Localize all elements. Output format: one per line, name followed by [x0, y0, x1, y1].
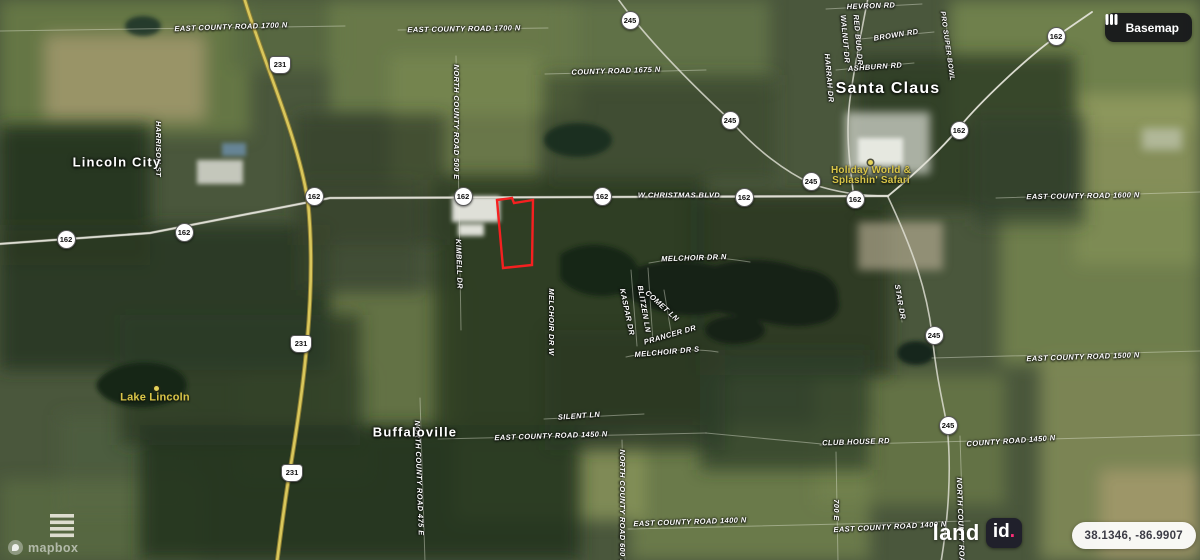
- mapbox-wordmark: mapbox: [28, 541, 78, 555]
- coordinates-value: 38.1346, -86.9907: [1085, 530, 1183, 542]
- land-id-logo: land id.: [933, 518, 1022, 548]
- id-logo-dot: .: [1010, 521, 1015, 542]
- satellite-canvas: [0, 0, 1200, 560]
- land-wordmark: land: [933, 520, 980, 546]
- mapbox-attribution[interactable]: mapbox: [8, 540, 78, 555]
- id-logo-box: id.: [986, 518, 1022, 548]
- basemap-button-label: Basemap: [1126, 21, 1179, 35]
- basemap-button[interactable]: Basemap: [1105, 13, 1192, 42]
- map-viewport[interactable]: EAST COUNTY ROAD 1700 NEAST COUNTY ROAD …: [0, 0, 1200, 560]
- coordinates-pill: 38.1346, -86.9907: [1072, 522, 1196, 549]
- mapbox-icon: [8, 540, 23, 555]
